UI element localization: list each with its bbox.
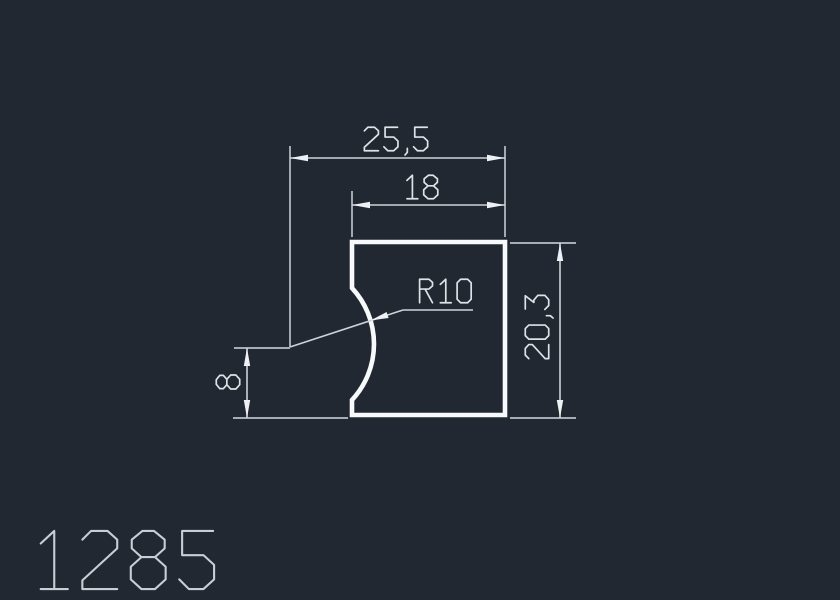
dim-top-width-value bbox=[407, 175, 438, 198]
cad-drawing bbox=[0, 0, 840, 600]
profile-outline bbox=[352, 242, 505, 415]
arrowhead-top bbox=[244, 348, 250, 366]
dim-right-height-value bbox=[525, 295, 553, 358]
dim-top-width bbox=[352, 175, 505, 237]
arrowhead-right bbox=[487, 202, 505, 208]
arrowhead-left bbox=[352, 202, 370, 208]
radius-leader bbox=[290, 279, 473, 347]
arrowhead-left bbox=[290, 155, 308, 161]
arrowhead bbox=[371, 312, 389, 321]
arrowhead-right bbox=[487, 155, 505, 161]
dim-left-height bbox=[216, 348, 348, 418]
dim-overall-width bbox=[290, 127, 505, 347]
arrowhead-top bbox=[557, 243, 563, 261]
dim-right-height bbox=[510, 243, 576, 418]
part-number-text bbox=[41, 531, 214, 589]
dim-left-height-value bbox=[216, 375, 239, 389]
arrowhead-bottom bbox=[557, 400, 563, 418]
profile-path bbox=[352, 242, 505, 415]
arrowhead-bottom bbox=[244, 400, 250, 418]
radius-value bbox=[420, 279, 472, 302]
cad-drawing-canvas bbox=[0, 0, 840, 600]
dim-overall-width-value bbox=[364, 127, 427, 155]
